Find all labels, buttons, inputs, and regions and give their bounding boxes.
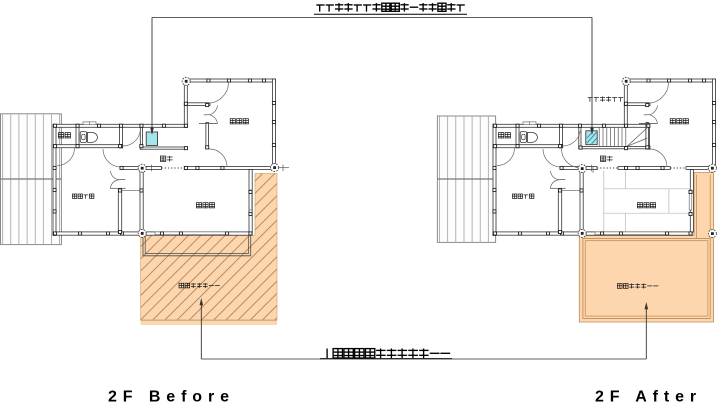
svg-text:2F Before: 2F Before <box>108 389 235 406</box>
svg-text:2F After: 2F After <box>595 389 702 406</box>
